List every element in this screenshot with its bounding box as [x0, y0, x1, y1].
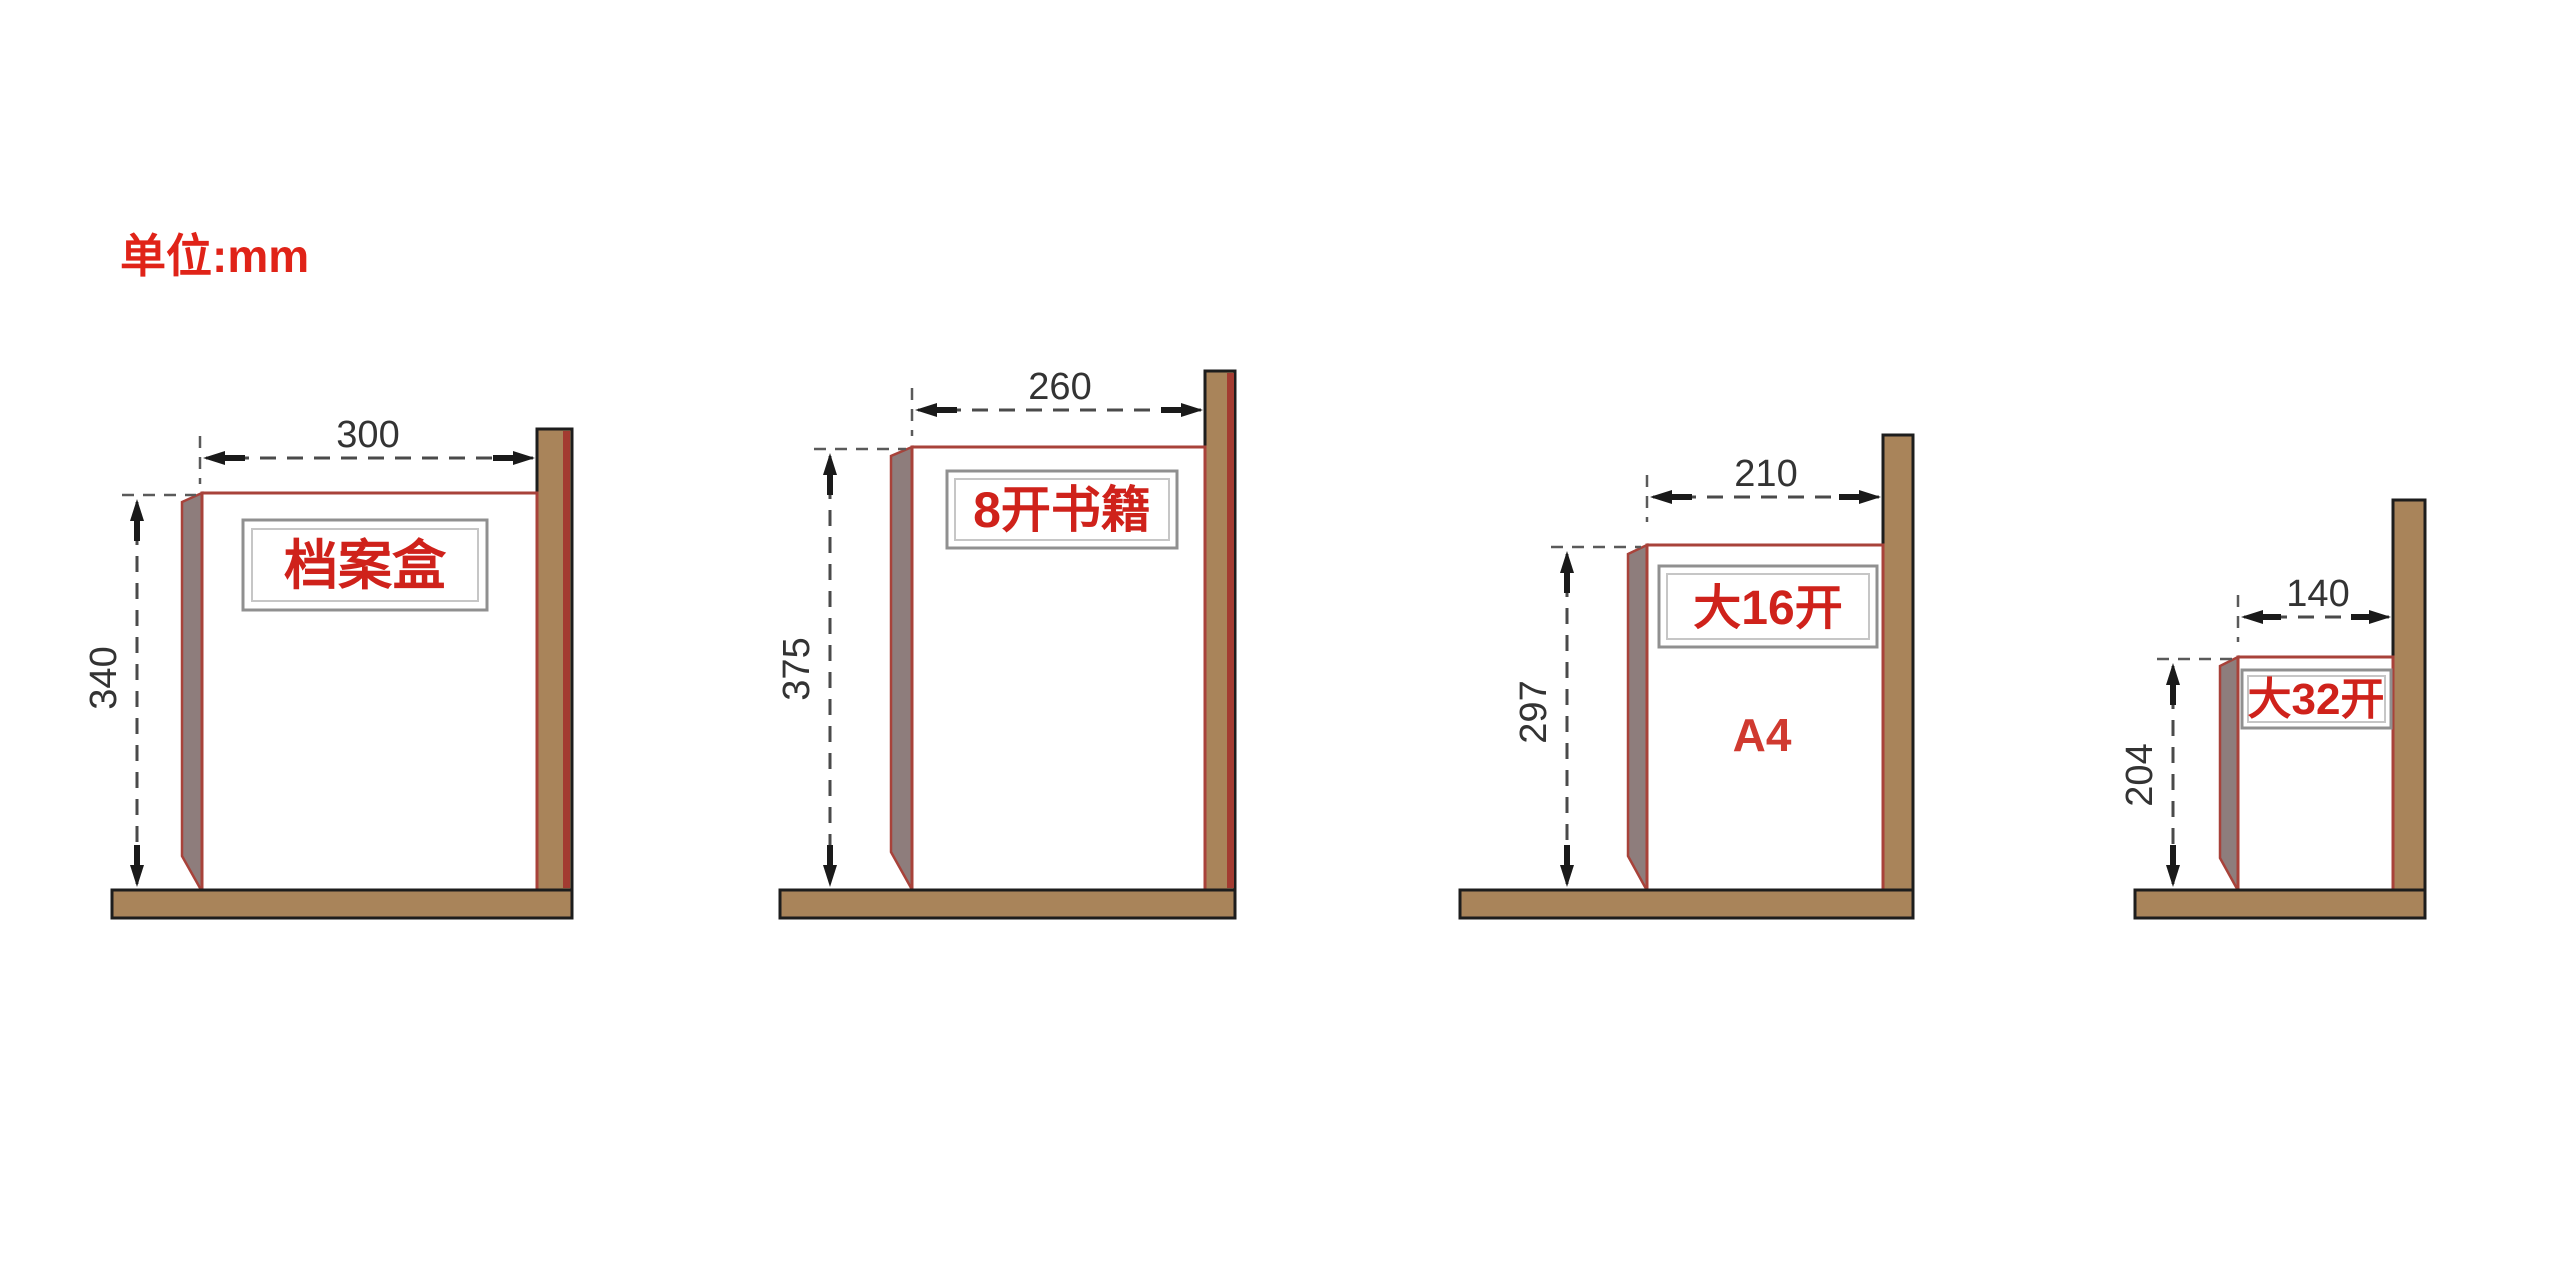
shelf-dimensions-diagram: 单位:mm 档案盒 300 340 8开书籍	[0, 0, 2560, 1280]
height-arrow-bottom	[130, 865, 144, 887]
height-arrow-bottom	[1560, 865, 1574, 887]
shelf-base	[780, 890, 1235, 918]
height-arrow-top	[130, 499, 144, 521]
shelf-post-shadow-edge	[1227, 373, 1234, 888]
width-arrow-left	[915, 403, 937, 417]
width-dimension-value: 260	[1028, 366, 1091, 408]
paper-size-label: A4	[1733, 709, 1792, 761]
height-dimension-value: 297	[1513, 680, 1555, 743]
width-arrow-right	[1181, 403, 1203, 417]
shelf-post-shadow-edge	[563, 431, 570, 888]
book-spine	[1628, 545, 1647, 890]
height-arrow-bottom	[823, 865, 837, 887]
width-arrow-right	[2369, 610, 2391, 624]
width-arrow-left	[203, 451, 225, 465]
width-arrow-left	[2241, 610, 2263, 624]
height-dimension-value: 204	[2119, 743, 2161, 806]
width-arrow-right	[1859, 490, 1881, 504]
book-spine	[182, 493, 202, 890]
diagram-book-8kai: 8开书籍 260 375	[776, 366, 1235, 918]
height-arrow-top	[2166, 663, 2180, 685]
shelf-post	[1883, 435, 1913, 890]
shelf-post	[2393, 500, 2425, 890]
book-type-label: 8开书籍	[973, 482, 1151, 538]
diagram-book-32kai: 大32开 140 204	[2119, 500, 2425, 918]
height-arrow-bottom	[2166, 865, 2180, 887]
height-arrow-top	[823, 453, 837, 475]
diagram-archive-box: 档案盒 300 340	[83, 414, 572, 918]
width-arrow-right	[513, 451, 535, 465]
unit-label: 单位:mm	[120, 230, 309, 282]
width-dimension-value: 300	[336, 414, 399, 456]
book-type-label: 档案盒	[284, 536, 447, 596]
height-dimension-value: 340	[83, 646, 125, 709]
shelf-base	[112, 890, 572, 918]
diagram-book-16kai: 大16开 A4 210 297	[1460, 435, 1913, 918]
book-spine	[891, 447, 912, 890]
book-type-label: 大16开	[1693, 582, 1842, 635]
width-dimension-value: 210	[1734, 453, 1797, 495]
book-type-label: 大32开	[2248, 675, 2385, 724]
shelf-base	[1460, 890, 1913, 918]
book-spine	[2220, 657, 2238, 890]
width-arrow-left	[1650, 490, 1672, 504]
shelf-base	[2135, 890, 2425, 918]
height-dimension-value: 375	[776, 637, 818, 700]
height-arrow-top	[1560, 551, 1574, 573]
width-dimension-value: 140	[2286, 573, 2349, 615]
